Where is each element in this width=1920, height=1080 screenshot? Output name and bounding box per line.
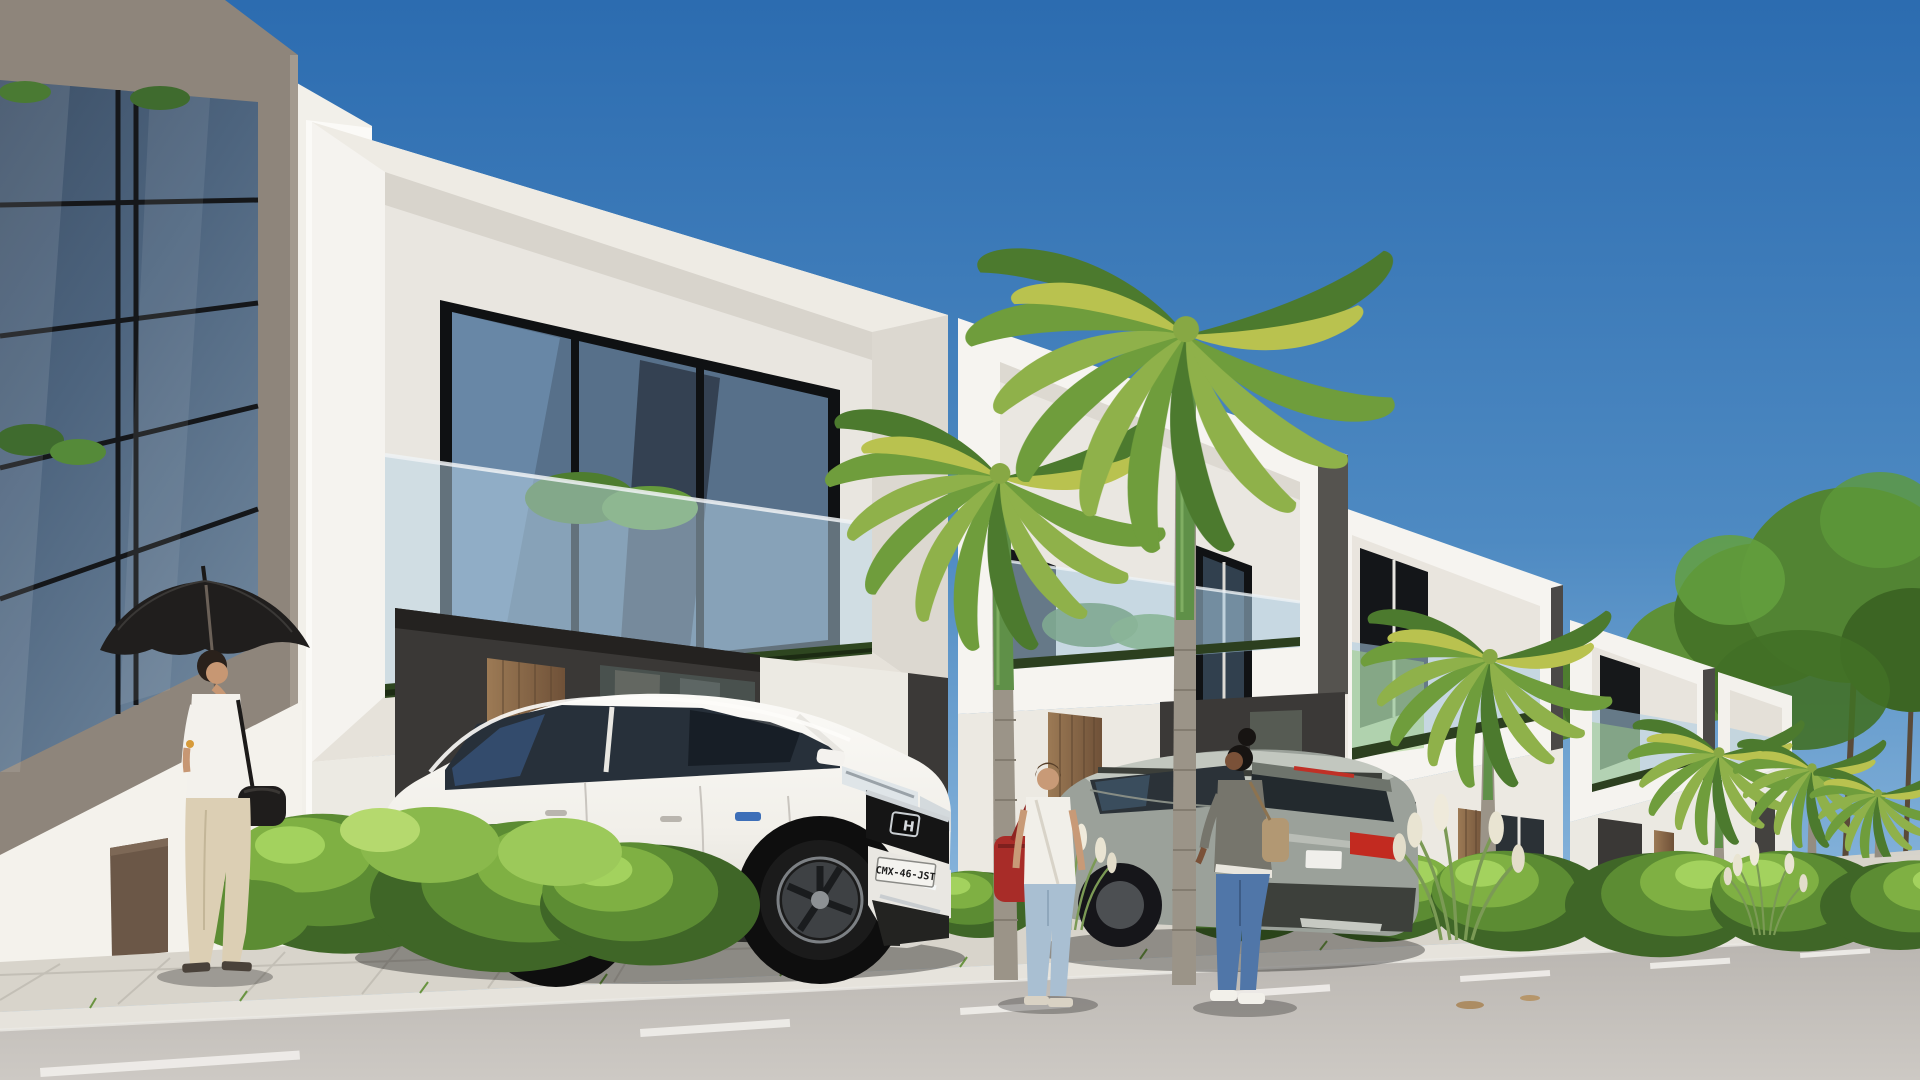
- street-rendering: H CMX-46-JST: [0, 0, 1920, 1080]
- svg-text:H: H: [902, 818, 916, 835]
- tan-bag: [1262, 818, 1289, 862]
- stone-slab: [110, 838, 168, 958]
- rendering-canvas: H CMX-46-JST: [0, 0, 1920, 1080]
- honda-emblem: H: [890, 812, 920, 837]
- hybrid-badge: [735, 812, 761, 821]
- gray-suv-plate: [1305, 850, 1342, 869]
